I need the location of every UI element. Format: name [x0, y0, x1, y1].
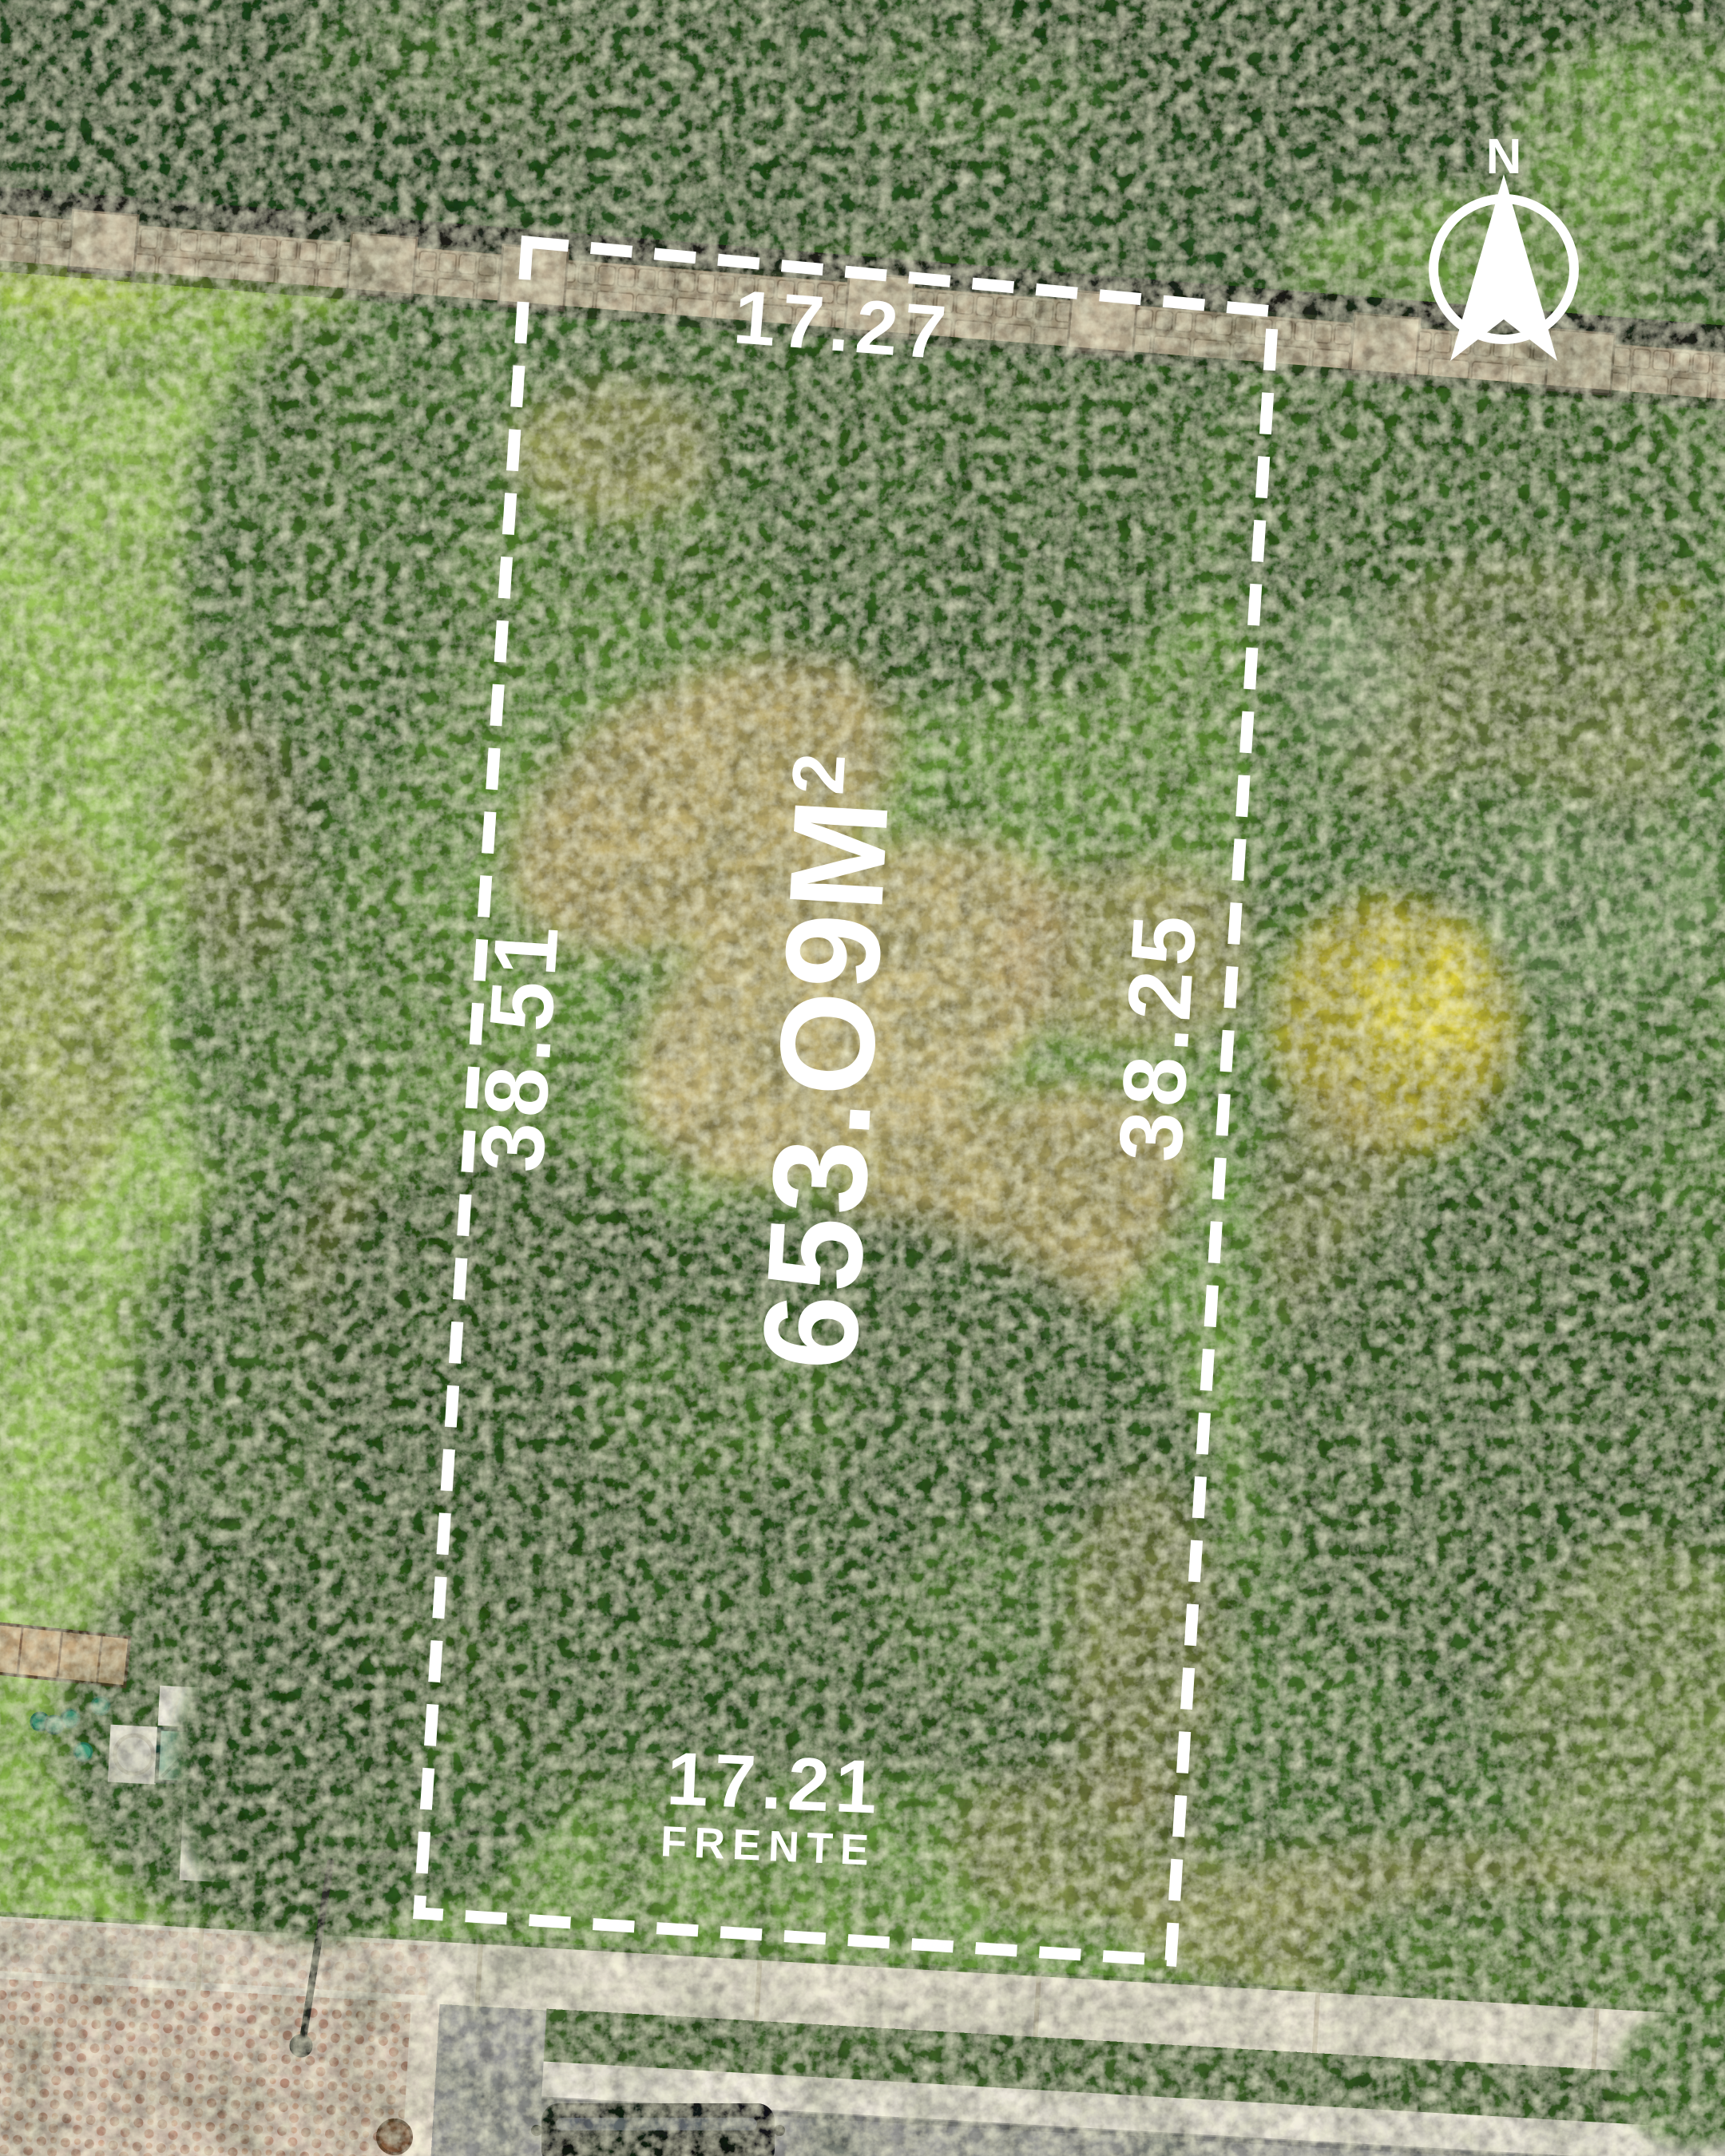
compass-north: N [1398, 118, 1610, 382]
measurement-top: 17.27 [731, 279, 954, 372]
area-label: 653.O9M2 [742, 751, 911, 1373]
measurement-front: 17.21 [665, 1741, 884, 1825]
front-label: FRENTE [660, 1820, 877, 1873]
lot-aerial-screenshot: N 17.27 38.51 38.25 653.O9M2 17.21 FRENT… [0, 0, 1725, 2156]
measurement-right: 38.25 [1105, 907, 1210, 1164]
north-arrow-icon [1450, 174, 1557, 361]
measurement-left: 38.51 [467, 917, 573, 1175]
area-exponent: 2 [775, 751, 861, 797]
